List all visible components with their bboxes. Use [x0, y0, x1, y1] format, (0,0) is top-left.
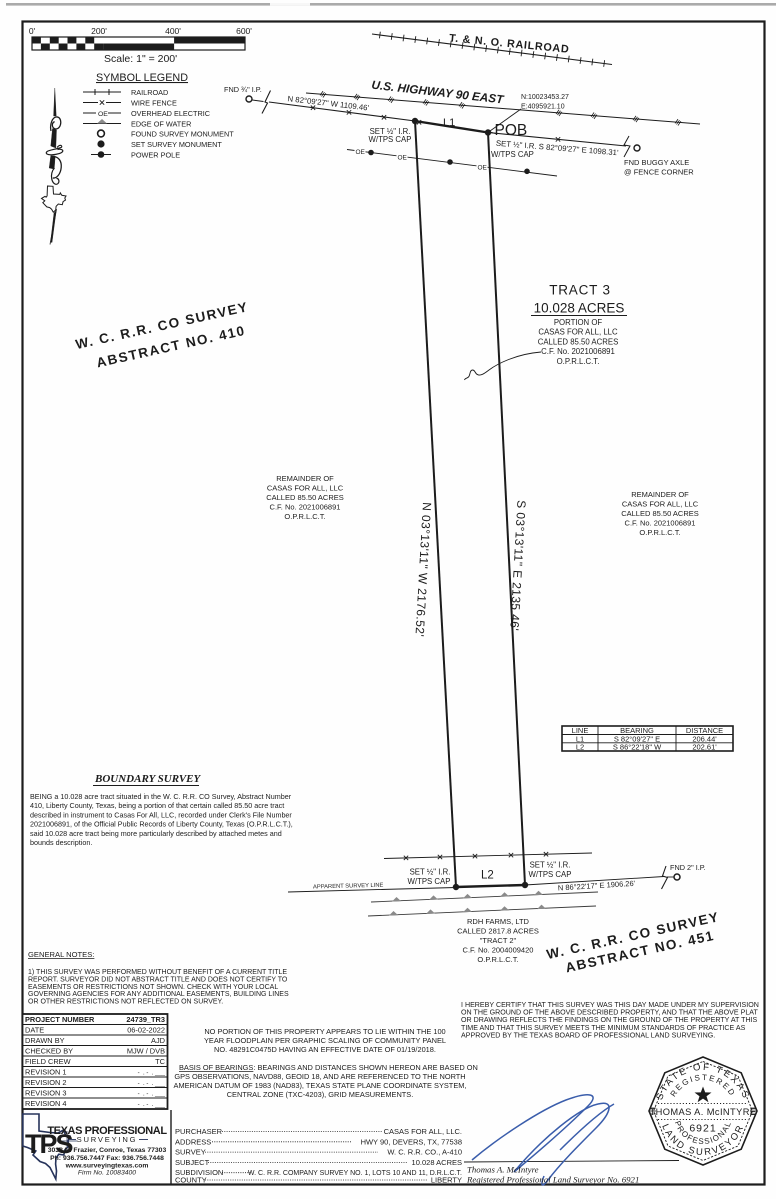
- svg-text:CENTRAL ZONE (TXC-4203), GRID: CENTRAL ZONE (TXC-4203), GRID MEASUREMEN…: [227, 1090, 414, 1099]
- svg-text:LIBERTY: LIBERTY: [431, 1176, 462, 1185]
- svg-text:C.F. No. 2021006891: C.F. No. 2021006891: [541, 347, 615, 356]
- svg-text:REPORT. SURVEYOR DID NOT ABSTR: REPORT. SURVEYOR DID NOT ABSTRACT TITLE …: [28, 976, 288, 983]
- svg-text:FND 2" I.P.: FND 2" I.P.: [670, 863, 706, 872]
- svg-text:OE: OE: [356, 149, 366, 156]
- svg-text:W/TPS CAP: W/TPS CAP: [491, 150, 534, 159]
- svg-text:CASAS FOR ALL, LLC.: CASAS FOR ALL, LLC.: [384, 1127, 462, 1136]
- svg-text:HWY 90, DEVERS, TX, 77538: HWY 90, DEVERS, TX, 77538: [361, 1137, 462, 1146]
- svg-text:FND ¾" I.P.: FND ¾" I.P.: [224, 85, 262, 94]
- svg-text:C.F. No. 2021006891: C.F. No. 2021006891: [270, 503, 341, 512]
- svg-text:Thomas A. McIntyre: Thomas A. McIntyre: [467, 1165, 539, 1175]
- svg-text:MJW / DVB: MJW / DVB: [127, 1047, 165, 1056]
- svg-text:OR OTHER RESTRICTIONS NOT REFL: OR OTHER RESTRICTIONS NOT REFLECTED ON S…: [28, 999, 223, 1006]
- svg-text:ADDRESS: ADDRESS: [175, 1137, 211, 1146]
- svg-text:OE: OE: [478, 164, 488, 171]
- svg-text:SURVEYING: SURVEYING: [77, 1135, 138, 1144]
- svg-text:CASAS FOR ALL, LLC: CASAS FOR ALL, LLC: [622, 500, 699, 509]
- svg-text:W/TPS CAP: W/TPS CAP: [529, 870, 572, 879]
- svg-text:OE: OE: [98, 111, 108, 118]
- svg-text:Registered Professional Land S: Registered Professional Land Surveyor No…: [466, 1175, 639, 1185]
- svg-text:2021006891, of the Official Pu: 2021006891, of the Official Public Recor…: [30, 820, 293, 829]
- svg-text:PORTION OF: PORTION OF: [554, 318, 603, 327]
- svg-text:OE: OE: [398, 154, 408, 161]
- svg-text:CALLED 85.50 ACRES: CALLED 85.50 ACRES: [538, 337, 619, 346]
- svg-text:Ph: 936.756.7447 Fax: 936.756: Ph: 936.756.7447 Fax: 936.756.7448: [50, 1155, 164, 1162]
- svg-text:NO PORTION OF THIS PROPERTY AP: NO PORTION OF THIS PROPERTY APPEARS TO L…: [204, 1027, 445, 1036]
- svg-text:bounds description.: bounds description.: [30, 838, 92, 847]
- svg-text:said 10.028 acre tract being m: said 10.028 acre tract being more partic…: [30, 829, 282, 838]
- svg-text:AMERICAN DATUM OF 1983 (NAD83): AMERICAN DATUM OF 1983 (NAD83), TEXAS ST…: [174, 1081, 467, 1090]
- svg-text:REVISION 3: REVISION 3: [25, 1089, 66, 1098]
- svg-text:GPS OBSERVATIONS, NAVD88, GEOI: GPS OBSERVATIONS, NAVD88, GEOID 18, AND …: [174, 1072, 465, 1081]
- svg-text:W/TPS CAP: W/TPS CAP: [369, 135, 412, 144]
- svg-text:FOUND SURVEY MONUMENT: FOUND SURVEY MONUMENT: [131, 130, 234, 139]
- svg-text:@ FENCE CORNER: @ FENCE CORNER: [624, 168, 694, 177]
- svg-text:N 03°13'11" W 2176.52': N 03°13'11" W 2176.52': [412, 502, 434, 638]
- svg-text:600': 600': [236, 26, 252, 36]
- svg-text:SURVEY: SURVEY: [175, 1148, 206, 1157]
- svg-text:- . - . ___: - . - . ___: [138, 1081, 166, 1087]
- svg-text:DATE: DATE: [25, 1026, 44, 1035]
- svg-text:O.P.R.L.C.T.: O.P.R.L.C.T.: [284, 512, 325, 521]
- svg-text:N 86°22'17" E 1906.26': N 86°22'17" E 1906.26': [558, 879, 636, 893]
- svg-text:TRACT 3: TRACT 3: [549, 283, 611, 298]
- svg-text:GOVERNING AGENCIES FOR ANY ADD: GOVERNING AGENCIES FOR ANY ADDITIONAL EA…: [28, 991, 289, 998]
- svg-text:Scale: 1" = 200': Scale: 1" = 200': [104, 53, 177, 65]
- svg-text:described in instrument to Cas: described in instrument to Casas For All…: [30, 810, 292, 819]
- svg-text:24739_TR3: 24739_TR3: [126, 1015, 165, 1024]
- svg-text:CASAS FOR ALL, LLC: CASAS FOR ALL, LLC: [267, 484, 344, 493]
- svg-text:YEAR FLOODPLAIN PER GRAPHIC SC: YEAR FLOODPLAIN PER GRAPHIC SCALING OF C…: [204, 1036, 446, 1045]
- svg-text:O.P.R.L.C.T.: O.P.R.L.C.T.: [639, 528, 680, 537]
- svg-text:BOUNDARY SURVEY: BOUNDARY SURVEY: [94, 773, 202, 785]
- svg-text:CALLED 85.50 ACRES: CALLED 85.50 ACRES: [621, 509, 699, 518]
- svg-text:6921: 6921: [689, 1123, 716, 1135]
- svg-text:202.61': 202.61': [692, 743, 717, 752]
- svg-text:O.P.R.L.C.T.: O.P.R.L.C.T.: [477, 955, 518, 964]
- svg-text:PURCHASER: PURCHASER: [175, 1127, 223, 1136]
- svg-text:DRAWN BY: DRAWN BY: [25, 1036, 65, 1045]
- svg-text:W. C. R.R. CO., A-410: W. C. R.R. CO., A-410: [387, 1148, 462, 1157]
- svg-text:400': 400': [165, 26, 181, 36]
- svg-text:RAILROAD: RAILROAD: [131, 88, 168, 97]
- svg-text:SET SURVEY MONUMENT: SET SURVEY MONUMENT: [131, 140, 222, 149]
- svg-text:CALLED 85.50 ACRES: CALLED 85.50 ACRES: [266, 493, 344, 502]
- svg-text:OVERHEAD ELECTRIC: OVERHEAD ELECTRIC: [131, 109, 210, 118]
- svg-text:0': 0': [29, 26, 36, 36]
- svg-text:BASIS OF BEARINGS: BEARINGS AN: BASIS OF BEARINGS: BEARINGS AND DISTANCE…: [179, 1063, 478, 1072]
- svg-text:L2: L2: [576, 743, 584, 752]
- svg-text:NO. 48291C0475D HAVING AN EFFE: NO. 48291C0475D HAVING AN EFFECTIVE DATE…: [214, 1045, 436, 1054]
- svg-text:S 03°13'11" E 2135.46': S 03°13'11" E 2135.46': [507, 500, 528, 632]
- svg-text:COUNTY: COUNTY: [175, 1176, 207, 1185]
- svg-text:SUBJECT: SUBJECT: [175, 1158, 210, 1167]
- svg-text:POWER POLE: POWER POLE: [131, 151, 180, 160]
- svg-text:SYMBOL LEGEND: SYMBOL LEGEND: [96, 72, 188, 84]
- svg-text:CALLED 2817.8 ACRES: CALLED 2817.8 ACRES: [457, 927, 539, 936]
- svg-text:REVISION 4: REVISION 4: [25, 1099, 66, 1108]
- svg-text:SET ½" I.R.: SET ½" I.R.: [410, 868, 451, 877]
- svg-text:C.F. No. 2004009420: C.F. No. 2004009420: [463, 946, 534, 955]
- svg-text:06-02-2022: 06-02-2022: [127, 1026, 165, 1035]
- svg-text:10.028 ACRES: 10.028 ACRES: [412, 1158, 462, 1167]
- svg-text:CHECKED BY: CHECKED BY: [25, 1047, 73, 1056]
- svg-text:FND BUGGY AXLE: FND BUGGY AXLE: [624, 158, 689, 167]
- svg-text:O.P.R.L.C.T.: O.P.R.L.C.T.: [557, 357, 600, 366]
- svg-text:REMAINDER OF: REMAINDER OF: [276, 474, 334, 483]
- svg-text:S 86°22'18" W: S 86°22'18" W: [613, 743, 662, 752]
- svg-text:GENERAL NOTES:: GENERAL NOTES:: [28, 950, 94, 959]
- svg-text:3032 N. Frazier, Conroe, Texas: 3032 N. Frazier, Conroe, Texas 77303: [48, 1147, 167, 1154]
- svg-text:SET ½" I.R.: SET ½" I.R.: [530, 861, 571, 870]
- svg-text:E:4095921.10: E:4095921.10: [521, 104, 565, 111]
- svg-text:"TRACT 2": "TRACT 2": [480, 936, 517, 945]
- svg-text:L2: L2: [481, 870, 494, 882]
- svg-text:200': 200': [91, 26, 107, 36]
- svg-text:- . - . ___: - . - . ___: [138, 1071, 166, 1077]
- svg-text:PROJECT NUMBER: PROJECT NUMBER: [25, 1015, 95, 1024]
- svg-text:AJD: AJD: [151, 1036, 165, 1045]
- svg-text:W/TPS CAP: W/TPS CAP: [408, 877, 451, 886]
- svg-text:THOMAS A. McINTYRE: THOMAS A. McINTYRE: [650, 1107, 757, 1117]
- svg-text:1) THIS SURVEY WAS PERFORMED W: 1) THIS SURVEY WAS PERFORMED WITHOUT BEN…: [28, 969, 287, 976]
- svg-text:REMAINDER OF: REMAINDER OF: [631, 490, 689, 499]
- svg-text:FIELD CREW: FIELD CREW: [25, 1057, 71, 1066]
- svg-text:- . - . ___: - . - . ___: [138, 1092, 166, 1098]
- svg-text:APPROVED BY THE TEXAS BOARD OF: APPROVED BY THE TEXAS BOARD OF PROFESSIO…: [461, 1031, 715, 1039]
- svg-text:10.028 ACRES: 10.028 ACRES: [534, 301, 625, 316]
- svg-text:www.surveyingtexas.com: www.surveyingtexas.com: [65, 1163, 149, 1170]
- svg-text:EDGE OF WATER: EDGE OF WATER: [131, 120, 191, 129]
- svg-text:- . - . ___: - . - . ___: [138, 1102, 166, 1108]
- svg-text:REVISION 1: REVISION 1: [25, 1068, 66, 1077]
- svg-text:N:10023453.27: N:10023453.27: [521, 94, 569, 101]
- svg-text:EASEMENTS OR RESTRICTIONS NOT: EASEMENTS OR RESTRICTIONS NOT SHOWN. CHE…: [28, 984, 278, 991]
- svg-text:TC: TC: [155, 1057, 166, 1066]
- svg-text:410, Liberty County, Texas, be: 410, Liberty County, Texas, being a port…: [30, 801, 284, 810]
- svg-text:C.F. No. 2021006891: C.F. No. 2021006891: [625, 519, 696, 528]
- svg-text:Firm No. 10083400: Firm No. 10083400: [78, 1170, 136, 1177]
- svg-text:CASAS FOR ALL, LLC: CASAS FOR ALL, LLC: [538, 328, 618, 337]
- svg-text:WIRE FENCE: WIRE FENCE: [131, 99, 177, 108]
- svg-text:RDH FARMS, LTD: RDH FARMS, LTD: [467, 917, 530, 926]
- svg-text:BEING a 10.028 acre tract situ: BEING a 10.028 acre tract situated in th…: [30, 792, 292, 801]
- svg-text:REVISION 2: REVISION 2: [25, 1078, 66, 1087]
